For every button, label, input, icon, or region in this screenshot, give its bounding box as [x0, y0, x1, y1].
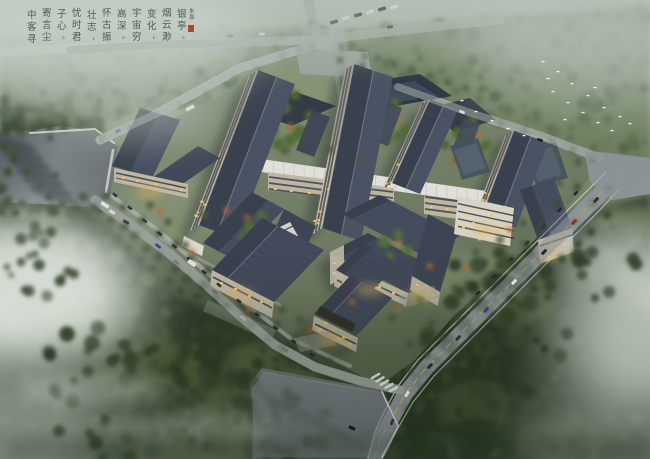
svg-text:怀: 怀 — [102, 7, 112, 19]
svg-text:客: 客 — [27, 21, 37, 33]
svg-text:志: 志 — [87, 21, 97, 33]
svg-text:。: 。 — [62, 32, 69, 40]
svg-text:宇: 宇 — [132, 7, 142, 19]
svg-text:，: ， — [92, 33, 99, 41]
svg-text:深: 深 — [117, 21, 127, 32]
svg-text:云: 云 — [162, 21, 172, 31]
svg-text:寻: 寻 — [27, 34, 37, 45]
svg-text:中: 中 — [27, 9, 37, 21]
svg-text:化: 化 — [147, 20, 157, 32]
svg-text:亭: 亭 — [177, 20, 187, 32]
svg-text:壮: 壮 — [87, 9, 97, 21]
svg-text:忧: 忧 — [72, 7, 82, 19]
svg-text:宙: 宙 — [132, 19, 142, 31]
svg-text:时: 时 — [72, 19, 82, 31]
svg-text:，: ， — [152, 32, 159, 40]
svg-text:心: 心 — [57, 21, 67, 32]
svg-text:言: 言 — [42, 19, 52, 31]
svg-text:变: 变 — [147, 8, 157, 20]
svg-text:君: 君 — [72, 32, 82, 43]
svg-text:子: 子 — [57, 9, 67, 20]
svg-text:熹: 熹 — [189, 13, 195, 21]
svg-text:尘: 尘 — [42, 32, 52, 43]
svg-text:高: 高 — [117, 8, 127, 20]
svg-text:振: 振 — [102, 31, 112, 43]
svg-text:古: 古 — [102, 19, 112, 31]
svg-text:。: 。 — [182, 32, 189, 40]
svg-text:。: 。 — [122, 32, 129, 40]
svg-text:烟: 烟 — [162, 7, 172, 19]
svg-text:朱: 朱 — [189, 7, 195, 15]
svg-text:银: 银 — [177, 8, 187, 20]
svg-text:穷: 穷 — [132, 31, 142, 43]
svg-text:寄: 寄 — [42, 7, 52, 19]
svg-text:渺: 渺 — [162, 32, 172, 43]
